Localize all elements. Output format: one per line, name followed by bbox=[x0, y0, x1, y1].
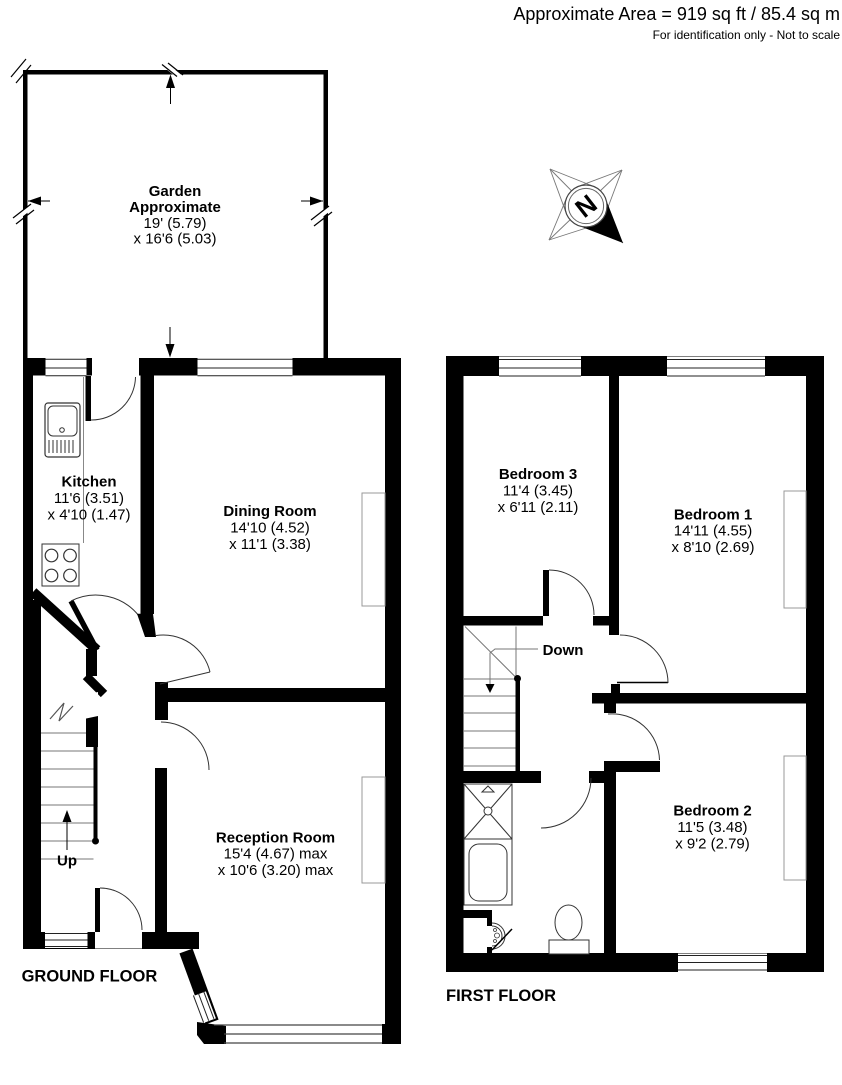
svg-text:11'6 (3.51): 11'6 (3.51) bbox=[54, 490, 124, 507]
svg-text:11'4 (3.45): 11'4 (3.45) bbox=[503, 483, 573, 500]
svg-text:x 8'10 (2.69): x 8'10 (2.69) bbox=[672, 539, 755, 556]
svg-text:Kitchen: Kitchen bbox=[61, 474, 116, 491]
svg-text:15'4 (4.67) max: 15'4 (4.67) max bbox=[224, 846, 328, 863]
svg-text:x 6'11 (2.11): x 6'11 (2.11) bbox=[498, 499, 579, 516]
svg-text:19' (5.79): 19' (5.79) bbox=[144, 215, 207, 232]
svg-text:Approximate: Approximate bbox=[129, 199, 221, 216]
svg-text:11'5 (3.48): 11'5 (3.48) bbox=[677, 819, 747, 836]
svg-text:Down: Down bbox=[543, 642, 584, 659]
svg-text:Approximate Area = 919 sq ft /: Approximate Area = 919 sq ft / 85.4 sq m bbox=[513, 4, 840, 24]
svg-text:x 9'2 (2.79): x 9'2 (2.79) bbox=[675, 836, 750, 853]
svg-text:x 11'1 (3.38): x 11'1 (3.38) bbox=[229, 536, 311, 553]
svg-text:For identification only - Not: For identification only - Not to scale bbox=[653, 28, 841, 42]
svg-text:Bedroom 3: Bedroom 3 bbox=[499, 466, 577, 483]
svg-text:x 10'6 (3.20) max: x 10'6 (3.20) max bbox=[218, 862, 334, 879]
svg-text:Bedroom 2: Bedroom 2 bbox=[673, 803, 751, 820]
svg-text:Dining Room: Dining Room bbox=[223, 503, 316, 520]
svg-text:Garden: Garden bbox=[149, 183, 202, 200]
svg-text:Bedroom 1: Bedroom 1 bbox=[674, 507, 752, 524]
svg-text:x 16'6 (5.03): x 16'6 (5.03) bbox=[134, 231, 217, 248]
svg-text:Reception Room: Reception Room bbox=[216, 830, 335, 847]
svg-text:14'10 (4.52): 14'10 (4.52) bbox=[230, 520, 310, 537]
svg-text:Up: Up bbox=[57, 853, 77, 870]
svg-text:x 4'10 (1.47): x 4'10 (1.47) bbox=[48, 506, 131, 523]
svg-text:14'11 (4.55): 14'11 (4.55) bbox=[674, 523, 752, 540]
svg-text:GROUND FLOOR: GROUND FLOOR bbox=[22, 967, 158, 985]
svg-text:FIRST FLOOR: FIRST FLOOR bbox=[446, 987, 556, 1005]
